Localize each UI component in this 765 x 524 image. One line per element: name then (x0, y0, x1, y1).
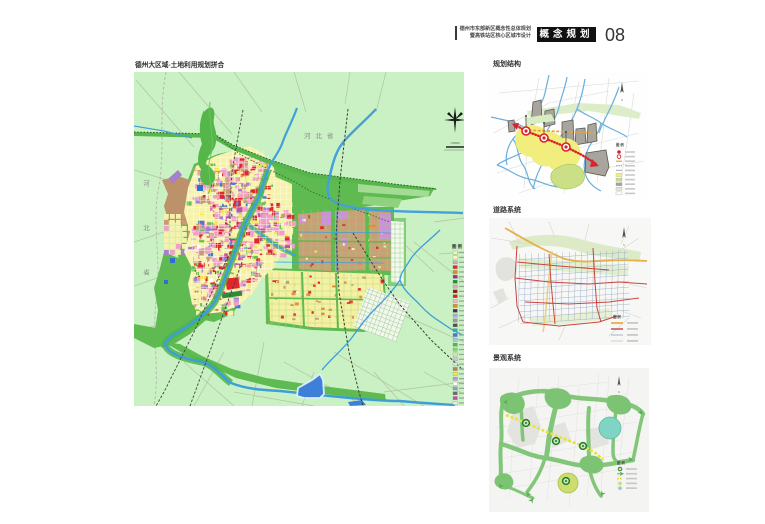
svg-text:1:50000: 1:50000 (450, 141, 460, 145)
svg-text:图 例: 图 例 (452, 243, 463, 250)
svg-text:图 例: 图 例 (616, 142, 624, 147)
svg-text:河北省: 河北省 (304, 131, 339, 140)
svg-text:图 例: 图 例 (617, 460, 625, 465)
svg-text:N: N (623, 243, 625, 247)
svg-text:图 例: 图 例 (613, 314, 621, 319)
svg-text:N: N (618, 390, 620, 394)
svg-text:N: N (621, 98, 623, 102)
